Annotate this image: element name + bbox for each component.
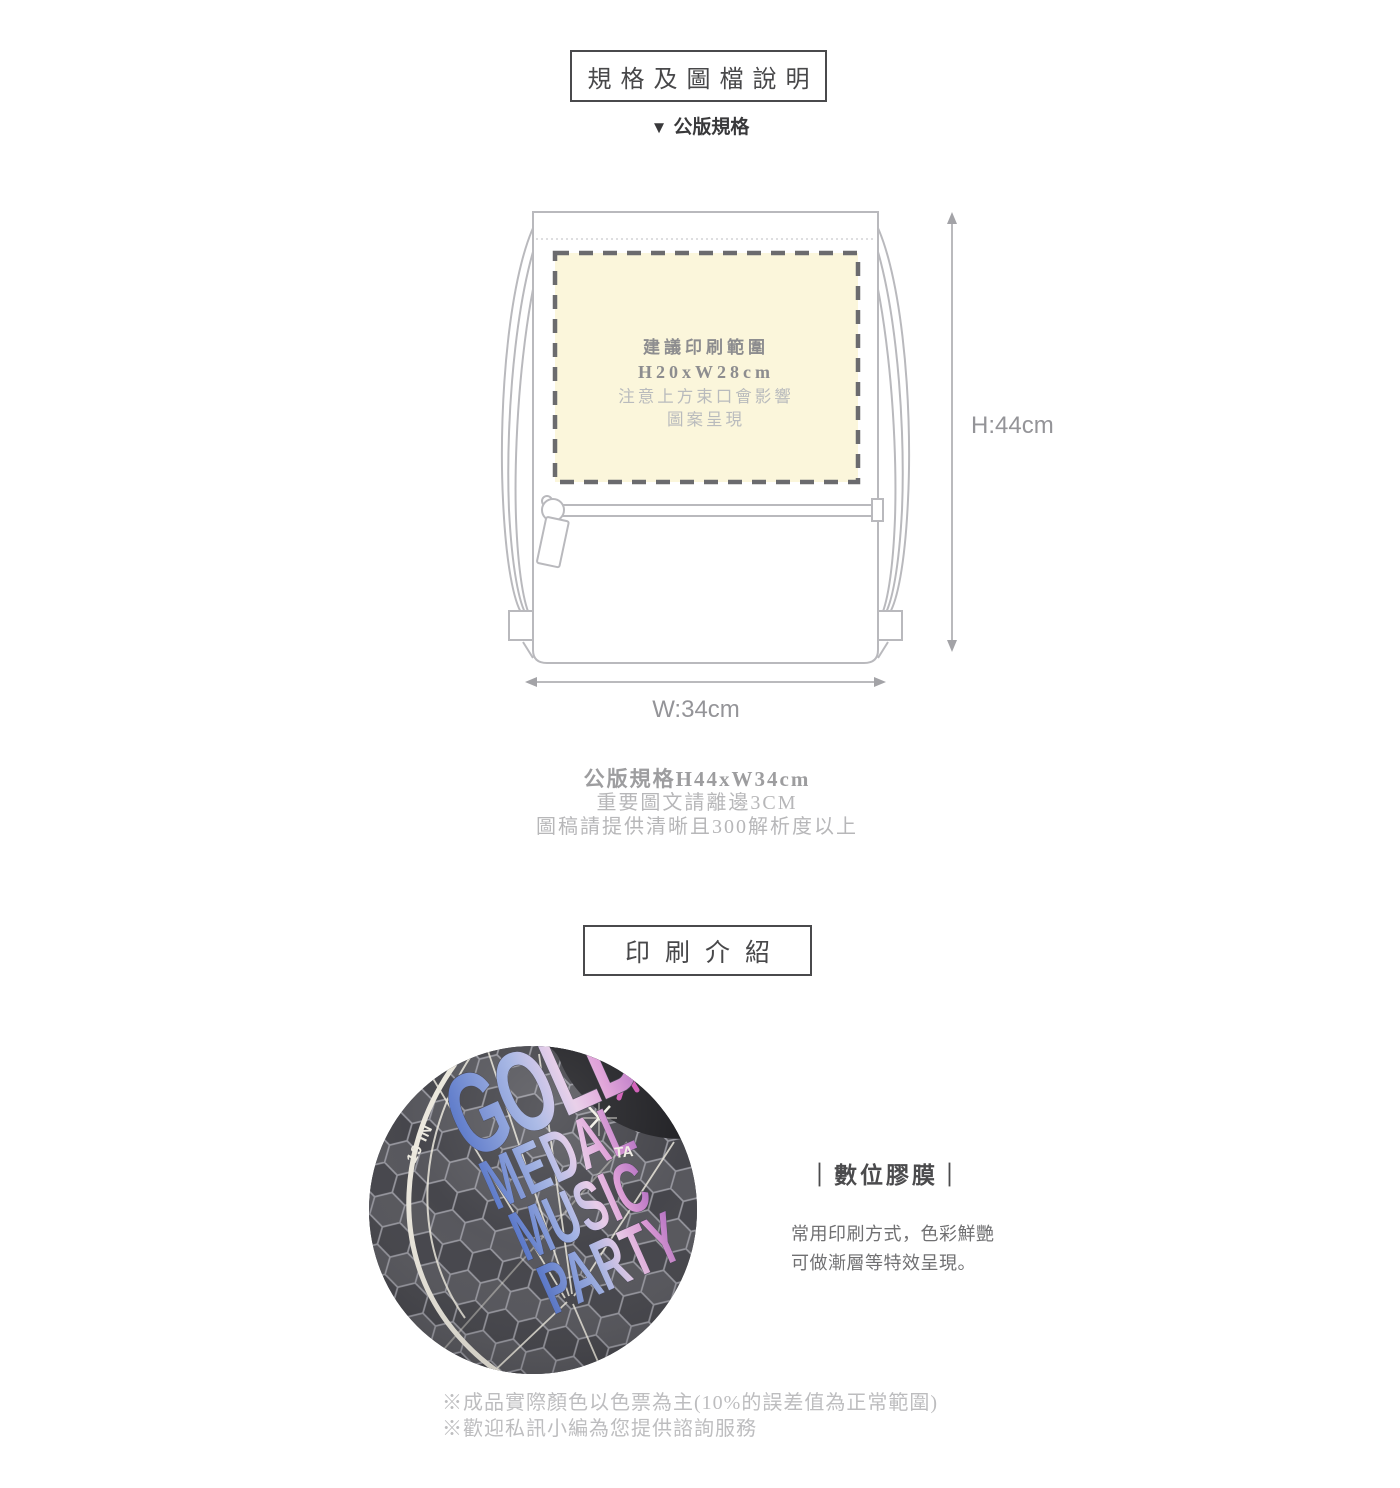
- print-method-desc-line1: 常用印刷方式，色彩鮮艷: [791, 1220, 1151, 1249]
- print-sample-photo: GOLD MEDAL MUSIC PARTY 19 IN TA: [369, 1046, 697, 1374]
- spec-line3: 圖稿請提供清晰且300解析度以上: [0, 815, 1394, 839]
- print-method-desc: 常用印刷方式，色彩鮮艷 可做漸層等特效呈現。: [791, 1220, 1151, 1278]
- triangle-down-icon: ▼: [651, 118, 668, 137]
- footnotes: ※成品實際顏色以色票為主(10%的誤差值為正常範圍) ※歡迎私訊小編為您提供諮詢…: [442, 1390, 938, 1442]
- photo-lighting: [369, 1046, 697, 1374]
- section-title-print-box: 印刷介紹: [583, 925, 812, 976]
- footnote-1: ※成品實際顏色以色票為主(10%的誤差值為正常範圍): [442, 1390, 938, 1416]
- print-sample-svg: GOLD MEDAL MUSIC PARTY 19 IN TA: [369, 1046, 697, 1374]
- height-label: H:44cm: [971, 412, 1054, 439]
- print-method-section: ｜數位膠膜｜ 常用印刷方式，色彩鮮艷 可做漸層等特效呈現。: [791, 1156, 1151, 1278]
- print-area-line1: 建議印刷範圍: [643, 337, 769, 357]
- width-dimension: W:34cm: [525, 677, 886, 723]
- spec-text-block: 公版規格H44xW34cm 重要圖文請離邊3CM 圖稿請提供清晰且300解析度以…: [0, 767, 1394, 839]
- print-area-line2: H20xW28cm: [638, 362, 774, 382]
- zipper-stop: [872, 499, 883, 521]
- page: 規格及圖檔說明 ▼公版規格: [0, 0, 1400, 1488]
- subtitle-public-spec: ▼公版規格: [0, 112, 1400, 139]
- print-area-line4: 圖案呈現: [667, 410, 745, 429]
- spec-line1: 公版規格H44xW34cm: [0, 767, 1394, 791]
- section-title-print: 印刷介紹: [610, 933, 785, 969]
- section-title-spec-box: 規格及圖檔說明: [570, 50, 827, 102]
- print-method-title: ｜數位膠膜｜: [791, 1156, 1151, 1190]
- width-label: W:34cm: [652, 696, 740, 723]
- print-area-line3: 注意上方束口會影響: [618, 387, 794, 406]
- print-method-desc-line2: 可做漸層等特效呈現。: [791, 1249, 1151, 1278]
- height-dimension: H:44cm: [947, 212, 1054, 652]
- bag-diagram-svg: 建議印刷範圍 H20xW28cm 注意上方束口會影響 圖案呈現: [430, 190, 1070, 735]
- bag-spec-diagram: 建議印刷範圍 H20xW28cm 注意上方束口會影響 圖案呈現: [430, 190, 1070, 735]
- spec-line2: 重要圖文請離邊3CM: [0, 791, 1394, 815]
- section-title-spec: 規格及圖檔說明: [579, 59, 819, 94]
- footnote-2: ※歡迎私訊小編為您提供諮詢服務: [442, 1416, 938, 1442]
- subtitle-label: 公版規格: [673, 117, 749, 138]
